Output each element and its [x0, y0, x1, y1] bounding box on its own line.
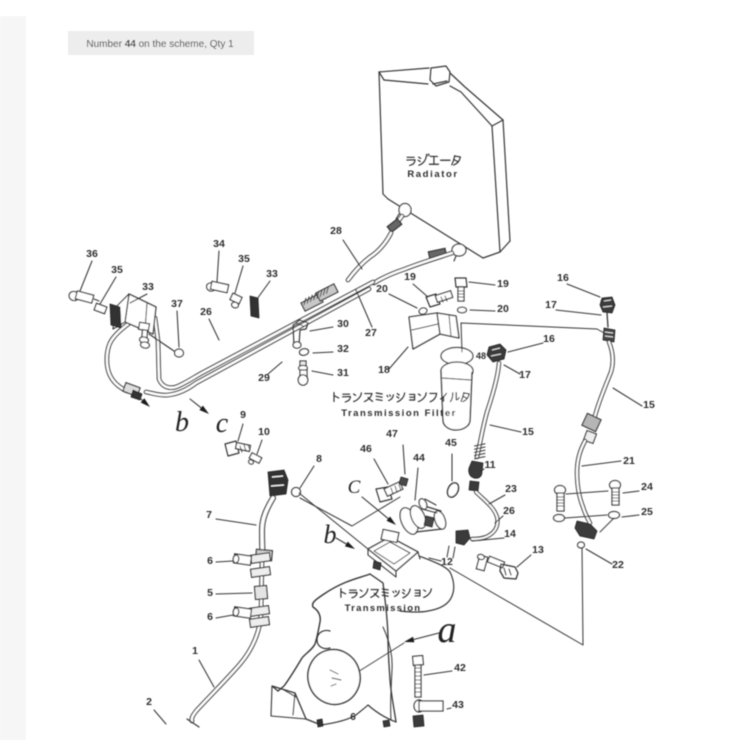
svg-text:14: 14 — [504, 528, 516, 540]
svg-text:34: 34 — [213, 238, 225, 250]
svg-text:6: 6 — [207, 555, 213, 567]
svg-text:8: 8 — [316, 453, 322, 465]
svg-text:15: 15 — [522, 426, 534, 438]
svg-text:Transmission: Transmission — [345, 603, 422, 614]
svg-text:b: b — [324, 520, 337, 549]
svg-text:26: 26 — [200, 306, 212, 318]
svg-text:17: 17 — [545, 299, 557, 311]
svg-text:c: c — [216, 408, 229, 439]
svg-text:a: a — [438, 609, 457, 651]
svg-text:33: 33 — [142, 281, 154, 293]
svg-text:27: 27 — [365, 327, 377, 339]
svg-text:28: 28 — [330, 225, 342, 237]
svg-text:9: 9 — [240, 409, 246, 421]
svg-text:32: 32 — [337, 343, 349, 355]
svg-text:2: 2 — [146, 696, 152, 708]
svg-text:45: 45 — [445, 437, 457, 449]
svg-text:6: 6 — [350, 712, 356, 723]
svg-text:10: 10 — [258, 426, 270, 438]
svg-text:19: 19 — [497, 278, 509, 290]
svg-text:31: 31 — [337, 367, 349, 379]
svg-text:15: 15 — [643, 399, 655, 411]
svg-text:1: 1 — [192, 645, 198, 657]
svg-text:46: 46 — [360, 443, 372, 455]
svg-text:16: 16 — [543, 333, 555, 345]
svg-text:18: 18 — [378, 364, 390, 376]
svg-text:17: 17 — [519, 369, 531, 381]
svg-text:21: 21 — [623, 455, 635, 467]
svg-text:16: 16 — [557, 272, 569, 284]
svg-text:11: 11 — [484, 459, 495, 471]
svg-text:Transmission Filter: Transmission Filter — [341, 408, 457, 419]
svg-text:22: 22 — [612, 559, 624, 571]
svg-text:24: 24 — [641, 481, 653, 493]
svg-text:12: 12 — [441, 556, 453, 568]
svg-text:5: 5 — [207, 587, 213, 599]
svg-text:13: 13 — [532, 544, 544, 556]
svg-text:47: 47 — [386, 428, 398, 440]
svg-text:26: 26 — [503, 505, 515, 517]
svg-text:33: 33 — [266, 268, 278, 280]
svg-text:37: 37 — [171, 298, 183, 310]
svg-text:35: 35 — [238, 253, 250, 265]
svg-text:19: 19 — [404, 271, 416, 283]
svg-text:Radiator: Radiator — [407, 169, 458, 180]
svg-text:43: 43 — [452, 699, 464, 711]
svg-text:6: 6 — [207, 611, 213, 623]
svg-text:20: 20 — [376, 283, 388, 295]
svg-text:7: 7 — [206, 509, 212, 521]
svg-text:35: 35 — [111, 264, 123, 276]
svg-text:23: 23 — [505, 483, 517, 495]
svg-text:48: 48 — [476, 351, 486, 361]
svg-text:C: C — [348, 477, 361, 498]
svg-text:36: 36 — [86, 248, 98, 260]
svg-text:30: 30 — [337, 318, 349, 330]
svg-text:Number 44 on the scheme, Qty 1: Number 44 on the scheme, Qty 1 — [86, 39, 234, 50]
svg-text:b: b — [175, 407, 189, 438]
svg-text:25: 25 — [641, 506, 653, 518]
svg-text:42: 42 — [454, 662, 466, 674]
svg-text:20: 20 — [497, 303, 509, 315]
svg-text:44: 44 — [413, 452, 425, 464]
